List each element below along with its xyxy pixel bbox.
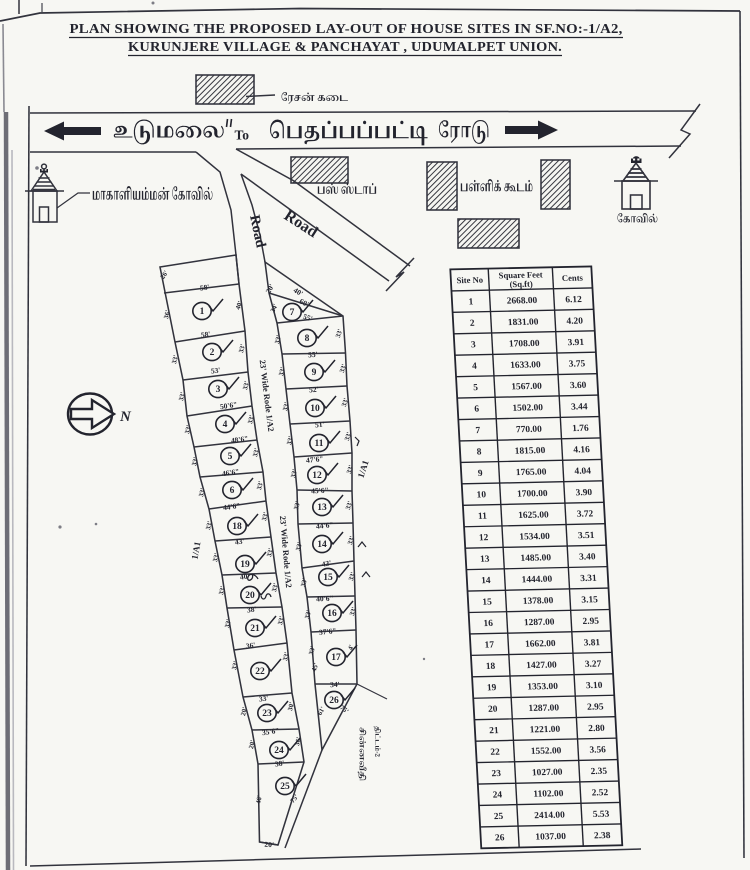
svg-text:43': 43' <box>321 558 332 569</box>
svg-text:25: 25 <box>280 782 290 792</box>
svg-text:33': 33' <box>308 645 317 655</box>
svg-text:20: 20 <box>488 705 498 715</box>
svg-text:34': 34' <box>330 680 340 689</box>
svg-text:2.95: 2.95 <box>582 617 599 627</box>
svg-text:1700.00: 1700.00 <box>517 489 548 500</box>
svg-text:46'6": 46'6" <box>221 467 240 478</box>
svg-text:33': 33' <box>274 334 283 344</box>
svg-text:52': 52' <box>309 385 319 395</box>
svg-text:5: 5 <box>228 452 233 462</box>
svg-text:43': 43' <box>234 536 245 546</box>
svg-text:1037.00: 1037.00 <box>535 832 566 843</box>
svg-text:33': 33' <box>347 535 356 546</box>
svg-text:3: 3 <box>216 385 221 395</box>
svg-text:1633.00: 1633.00 <box>510 360 541 371</box>
svg-text:1378.00: 1378.00 <box>523 596 554 607</box>
svg-text:9: 9 <box>312 368 317 378</box>
svg-text:24: 24 <box>492 790 502 800</box>
svg-text:1427.00: 1427.00 <box>526 660 557 671</box>
svg-text:21: 21 <box>489 726 499 736</box>
svg-text:33': 33' <box>348 571 357 582</box>
svg-text:33': 33' <box>286 435 295 445</box>
svg-text:12: 12 <box>479 533 489 543</box>
svg-text:4.20: 4.20 <box>566 317 583 327</box>
svg-text:To: To <box>235 128 250 143</box>
svg-text:1/A1: 1/A1 <box>190 540 203 560</box>
svg-text:1444.00: 1444.00 <box>521 575 552 586</box>
svg-text:2414.00: 2414.00 <box>534 811 565 822</box>
svg-text:1: 1 <box>468 297 474 307</box>
svg-text:Cents: Cents <box>562 273 584 283</box>
svg-text:4.04: 4.04 <box>574 467 591 477</box>
svg-text:53': 53' <box>210 365 221 375</box>
svg-text:3.60: 3.60 <box>570 381 587 391</box>
svg-text:20': 20' <box>264 282 277 295</box>
svg-text:3.75: 3.75 <box>569 359 586 369</box>
svg-text:13: 13 <box>317 503 327 513</box>
svg-text:1485.00: 1485.00 <box>520 553 551 564</box>
svg-text:1534.00: 1534.00 <box>519 532 550 543</box>
svg-text:1552.00: 1552.00 <box>531 746 562 757</box>
svg-text:6: 6 <box>230 486 235 496</box>
svg-text:44'6": 44'6" <box>316 520 334 531</box>
svg-text:3.72: 3.72 <box>577 509 594 519</box>
svg-text:45'6": 45'6" <box>311 486 329 496</box>
svg-text:4': 4' <box>347 644 355 651</box>
svg-text:33': 33' <box>258 693 269 703</box>
svg-text:33': 33' <box>295 541 304 551</box>
svg-text:16: 16 <box>327 609 337 619</box>
svg-text:33': 33' <box>224 618 233 628</box>
svg-text:23' Wide Rode 1/A2: 23' Wide Rode 1/A2 <box>258 359 277 432</box>
svg-text:20: 20 <box>245 591 255 601</box>
svg-text:Site No: Site No <box>456 275 483 286</box>
svg-text:33': 33' <box>218 585 227 595</box>
svg-text:48'6": 48'6" <box>230 434 249 445</box>
svg-text:10: 10 <box>310 404 320 414</box>
svg-text:1/A1: 1/A1 <box>356 458 371 479</box>
svg-text:55': 55' <box>302 312 314 324</box>
svg-text:7: 7 <box>475 426 481 436</box>
svg-text:2: 2 <box>470 319 476 329</box>
svg-text:3.31: 3.31 <box>580 574 597 584</box>
svg-text:1662.00: 1662.00 <box>525 639 556 650</box>
svg-text:(Sq.ft): (Sq.ft) <box>509 279 533 289</box>
svg-text:37'6": 37'6" <box>319 626 337 637</box>
svg-text:3.51: 3.51 <box>578 531 595 541</box>
svg-text:1287.00: 1287.00 <box>524 618 555 629</box>
svg-text:1287.00: 1287.00 <box>528 703 559 714</box>
svg-text:22: 22 <box>490 748 500 758</box>
svg-text:2.80: 2.80 <box>588 724 605 734</box>
svg-text:14: 14 <box>481 576 491 586</box>
svg-text:1102.00: 1102.00 <box>533 789 564 800</box>
svg-text:19: 19 <box>240 560 250 570</box>
svg-text:17: 17 <box>484 640 494 650</box>
svg-text:4: 4 <box>472 362 478 372</box>
svg-text:46': 46' <box>255 795 263 805</box>
svg-text:2.35: 2.35 <box>590 767 607 777</box>
svg-text:58': 58' <box>199 282 210 292</box>
svg-text:33': 33' <box>349 606 358 617</box>
svg-text:34': 34' <box>270 303 280 314</box>
svg-text:33': 33' <box>335 328 344 339</box>
svg-text:33': 33' <box>231 660 240 670</box>
svg-text:1815.00: 1815.00 <box>515 446 546 457</box>
svg-text:13: 13 <box>480 555 490 565</box>
svg-text:3.44: 3.44 <box>571 402 588 412</box>
svg-text:33': 33' <box>304 609 313 619</box>
svg-text:18: 18 <box>486 662 496 672</box>
svg-text:26: 26 <box>329 696 339 706</box>
svg-text:14: 14 <box>317 540 327 550</box>
svg-text:15: 15 <box>323 573 333 583</box>
svg-text:1625.00: 1625.00 <box>518 510 549 521</box>
svg-text:2.95: 2.95 <box>587 702 604 712</box>
svg-text:3.15: 3.15 <box>581 595 598 605</box>
svg-text:21: 21 <box>250 624 260 634</box>
svg-text:51': 51' <box>314 420 324 430</box>
svg-text:44'6": 44'6" <box>222 501 241 512</box>
svg-text:33': 33' <box>278 366 287 376</box>
svg-text:10: 10 <box>476 490 486 500</box>
svg-text:33': 33' <box>290 468 299 478</box>
svg-text:16: 16 <box>483 619 493 629</box>
svg-text:33': 33' <box>184 424 193 434</box>
svg-text:22: 22 <box>255 667 265 677</box>
svg-text:26: 26 <box>495 833 505 843</box>
svg-text:25: 25 <box>494 812 504 822</box>
svg-text:3.56: 3.56 <box>589 745 606 755</box>
svg-text:15: 15 <box>482 597 492 607</box>
svg-text:3.40: 3.40 <box>579 552 596 562</box>
svg-text:33': 33' <box>191 456 200 466</box>
svg-text:8: 8 <box>305 334 310 344</box>
svg-text:12: 12 <box>312 471 322 481</box>
svg-text:50'6": 50'6" <box>219 400 238 411</box>
svg-text:4: 4 <box>223 420 228 430</box>
svg-text:38': 38' <box>274 758 285 768</box>
svg-text:3.81: 3.81 <box>583 638 600 648</box>
svg-text:1: 1 <box>200 307 205 317</box>
svg-text:35'6": 35'6" <box>261 726 280 737</box>
svg-text:1831.00: 1831.00 <box>508 317 539 328</box>
svg-text:3.91: 3.91 <box>567 338 584 348</box>
svg-text:1221.00: 1221.00 <box>529 725 560 736</box>
svg-text:6: 6 <box>474 405 480 415</box>
svg-text:23' Wide Rode 1/A2: 23' Wide Rode 1/A2 <box>278 515 294 588</box>
svg-text:3.10: 3.10 <box>586 681 603 691</box>
svg-text:1765.00: 1765.00 <box>516 467 547 478</box>
svg-text:2.38: 2.38 <box>594 831 611 841</box>
svg-text:33': 33' <box>300 577 309 587</box>
svg-text:18: 18 <box>232 522 242 532</box>
svg-text:5.53: 5.53 <box>593 810 610 820</box>
svg-text:58': 58' <box>200 329 211 339</box>
svg-text:1353.00: 1353.00 <box>527 682 558 693</box>
svg-text:9: 9 <box>478 469 484 479</box>
svg-text:38': 38' <box>246 604 257 614</box>
svg-text:7: 7 <box>290 308 295 318</box>
svg-text:33': 33' <box>346 464 355 475</box>
svg-text:4.16: 4.16 <box>573 445 590 455</box>
svg-text:Road: Road <box>246 214 269 250</box>
svg-text:1502.00: 1502.00 <box>512 403 543 414</box>
svg-text:KURUNJERE VILLAGE & PANCHAYAT: KURUNJERE VILLAGE & PANCHAYAT , UDUMALPE… <box>128 39 562 54</box>
svg-text:2: 2 <box>210 348 215 358</box>
svg-text:40'6": 40'6" <box>316 594 334 604</box>
svg-text:2.52: 2.52 <box>591 788 608 798</box>
svg-text:6.12: 6.12 <box>565 295 582 305</box>
svg-text:47'6": 47'6" <box>306 454 324 465</box>
svg-text:23: 23 <box>491 769 501 779</box>
svg-text:5: 5 <box>473 383 479 393</box>
svg-text:Road: Road <box>281 207 321 241</box>
svg-text:8: 8 <box>476 447 482 457</box>
svg-text:1027.00: 1027.00 <box>532 768 563 779</box>
svg-text:3: 3 <box>471 340 477 350</box>
svg-text:1567.00: 1567.00 <box>511 382 542 393</box>
svg-text:20': 20' <box>264 840 274 850</box>
svg-text:3.27: 3.27 <box>585 660 602 670</box>
svg-text:36': 36' <box>245 640 256 650</box>
svg-text:23: 23 <box>262 709 272 719</box>
svg-text:45': 45' <box>311 662 321 673</box>
svg-text:PLAN SHOWING THE PROPOSED: PLAN SHOWING THE PROPOSED LAY-OUT OF HOU… <box>70 21 623 36</box>
svg-text:770.00: 770.00 <box>516 425 543 436</box>
svg-text:11: 11 <box>478 512 488 522</box>
svg-text:1.76: 1.76 <box>572 424 589 434</box>
svg-text:2668.00: 2668.00 <box>507 296 538 307</box>
svg-text:17: 17 <box>331 653 341 663</box>
svg-text:19: 19 <box>487 683 497 693</box>
svg-text:33': 33' <box>282 401 291 411</box>
svg-text:33': 33' <box>282 651 291 661</box>
svg-text:11: 11 <box>315 439 324 449</box>
svg-text:24: 24 <box>274 746 284 756</box>
svg-text:33': 33' <box>293 500 302 510</box>
svg-text:1708.00: 1708.00 <box>509 339 540 350</box>
svg-text:55': 55' <box>308 350 318 360</box>
svg-text:3.90: 3.90 <box>575 488 592 498</box>
svg-text:N: N <box>119 409 132 425</box>
